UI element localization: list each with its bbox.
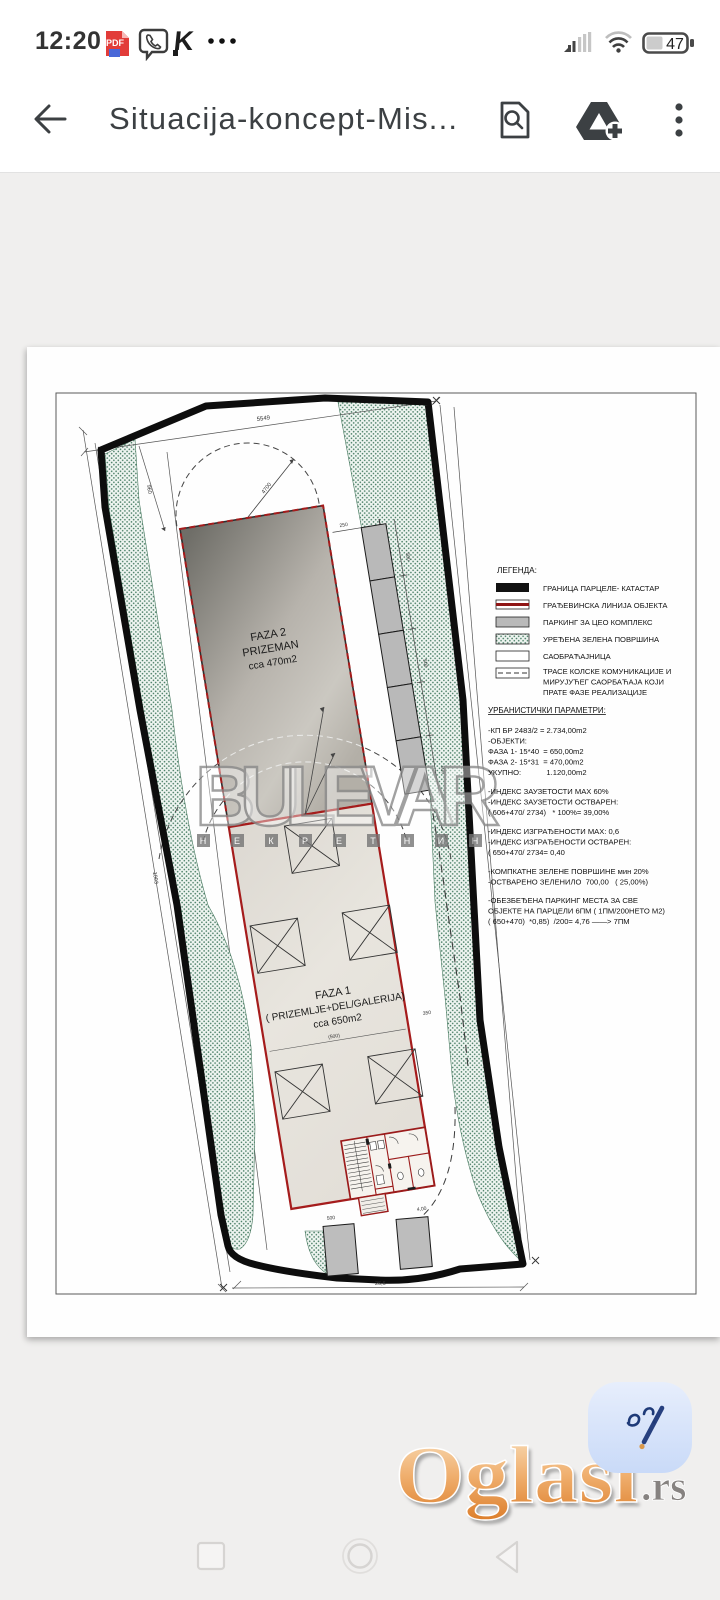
svg-text:BULEVAR: BULEVAR: [195, 749, 502, 843]
svg-text:-ИНДЕКС ЗАУЗЕТОСТИ ОСТВАРЕН:: -ИНДЕКС ЗАУЗЕТОСТИ ОСТВАРЕН:: [488, 798, 618, 807]
svg-text:4700: 4700: [261, 482, 273, 495]
svg-text:-КП БР 2483/2 = 2.734,00m2: -КП БР 2483/2 = 2.734,00m2: [488, 726, 587, 735]
svg-text:УРЕЂЕНА ЗЕЛЕНА ПОВРШИНА: УРЕЂЕНА ЗЕЛЕНА ПОВРШИНА: [543, 635, 660, 644]
svg-text:-ИНДЕКС ЗАУЗЕТОСТИ MAX 60%: -ИНДЕКС ЗАУЗЕТОСТИ MAX 60%: [488, 787, 609, 796]
svg-text:Р: Р: [302, 836, 308, 846]
svg-text:САОБРАЋАЈНИЦА: САОБРАЋАЈНИЦА: [543, 652, 612, 661]
svg-text:250: 250: [339, 522, 348, 529]
svg-text:К: К: [268, 836, 274, 846]
svg-text:ГРАНИЦА ПАРЦЕЛЕ- КАТАСТАР: ГРАНИЦА ПАРЦЕЛЕ- КАТАСТАР: [543, 584, 659, 593]
svg-text:350: 350: [422, 1010, 431, 1017]
svg-text:УРБАНИСТИЧКИ ПАРАМЕТРИ:: УРБАНИСТИЧКИ ПАРАМЕТРИ:: [488, 706, 606, 715]
svg-text:Е: Е: [234, 836, 240, 846]
svg-text:( 606+470/ 2734) * 100%= 39,: ( 606+470/ 2734) * 100%= 39,00%: [488, 808, 609, 817]
svg-text:МИРУЈУЋЕГ САОРБАЋАЈА КОЈИ: МИРУЈУЋЕГ САОРБАЋАЈА КОЈИ: [543, 678, 664, 687]
svg-text:-ОБЈЕКТИ:: -ОБЈЕКТИ:: [488, 737, 527, 746]
svg-text:Н: Н: [404, 836, 411, 846]
svg-text:И: И: [438, 836, 444, 846]
svg-text:4,00: 4,00: [417, 1206, 428, 1213]
svg-text:-КОМПКАТНЕ ЗЕЛЕНЕ ПОВРШИНЕ мин: -КОМПКАТНЕ ЗЕЛЕНЕ ПОВРШИНЕ мин 20%: [488, 867, 649, 876]
svg-text:( 650+470/ 2734= 0,40: ( 650+470/ 2734= 0,40: [488, 848, 565, 857]
svg-text:ЛЕГЕНДА:: ЛЕГЕНДА:: [497, 566, 537, 575]
svg-text:( 650+470) *0,85) /200= 4,76: ( 650+470) *0,85) /200= 4,76 ——> 7ПМ: [488, 917, 630, 926]
svg-text:УКУПНО: 1.120,00m2: УКУПНО: 1.120,00m2: [488, 768, 587, 777]
svg-text:1003: 1003: [151, 871, 159, 884]
svg-text:Н: Н: [472, 836, 479, 846]
svg-text:-ОБЕЗБЕЂЕНА ПАРКИНГ МЕСТА ЗА С: -ОБЕЗБЕЂЕНА ПАРКИНГ МЕСТА ЗА СВЕ: [488, 896, 638, 905]
svg-text:Е: Е: [336, 836, 342, 846]
svg-text:-ИНДЕКС ИЗГРАЂЕНОСТИ MAX: 0,6: -ИНДЕКС ИЗГРАЂЕНОСТИ MAX: 0,6: [488, 827, 619, 836]
svg-text:ФАЗА 2- 15*31 = 470,00m2: ФАЗА 2- 15*31 = 470,00m2: [488, 758, 584, 767]
svg-text:ОБЈЕКТЕ НА ПАРЦЕЛИ 6ПМ ( 1ПМ/2: ОБЈЕКТЕ НА ПАРЦЕЛИ 6ПМ ( 1ПМ/200НЕТО М2): [488, 907, 665, 916]
svg-text:Н: Н: [200, 836, 207, 846]
svg-text:500: 500: [327, 1215, 336, 1222]
svg-text:ПРАТЕ ФАЗЕ РЕАЛИЗАЦИЈЕ: ПРАТЕ ФАЗЕ РЕАЛИЗАЦИЈЕ: [543, 688, 647, 697]
svg-text:5549: 5549: [256, 415, 271, 423]
svg-text:ПАРКИНГ ЗА ЦЕО КОМПЛЕКС: ПАРКИНГ ЗА ЦЕО КОМПЛЕКС: [543, 618, 653, 627]
svg-text:26,6: 26,6: [375, 1281, 386, 1287]
svg-text:ТРАСЕ КОЛСКЕ КОМУНИКАЦИЈЕ И: ТРАСЕ КОЛСКЕ КОМУНИКАЦИЈЕ И: [543, 667, 671, 676]
svg-text:-ИНДЕКС ИЗГРАЂЕНОСТИ ОСТВАРЕН:: -ИНДЕКС ИЗГРАЂЕНОСТИ ОСТВАРЕН:: [488, 838, 631, 847]
svg-text:PDF: PDF: [106, 38, 125, 48]
svg-text:ГРАЂЕВИНСКА ЛИНИЈА ОБЈЕКТА: ГРАЂЕВИНСКА ЛИНИЈА ОБЈЕКТА: [543, 601, 668, 610]
svg-text:-ОСТВАРЕНО ЗЕЛЕНИЛО 700,00: -ОСТВАРЕНО ЗЕЛЕНИЛО 700,00 ( 25,00%): [488, 878, 649, 887]
svg-text:ФАЗА 1- 15*40 = 650,00m2: ФАЗА 1- 15*40 = 650,00m2: [488, 747, 584, 756]
svg-text:960: 960: [145, 484, 152, 494]
svg-text:47: 47: [666, 36, 684, 53]
svg-text:Т: Т: [370, 836, 376, 846]
